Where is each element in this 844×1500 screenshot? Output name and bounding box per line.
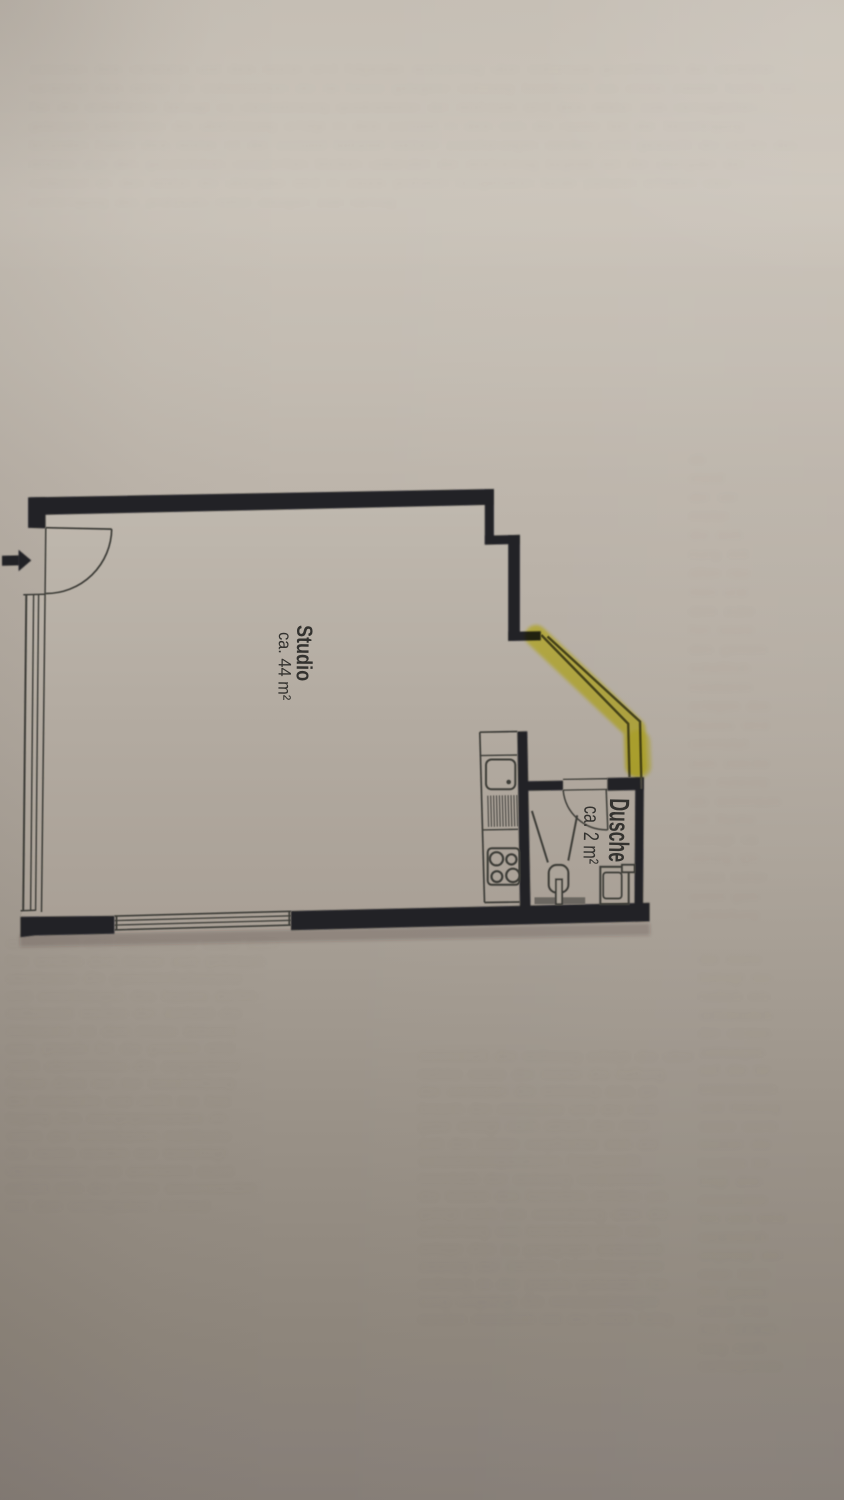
svg-text:ca. 44 m²: ca. 44 m² [274,632,296,701]
svg-text:ca. 2 m²: ca. 2 m² [578,806,603,865]
svg-text:Dusche: Dusche [603,798,635,862]
